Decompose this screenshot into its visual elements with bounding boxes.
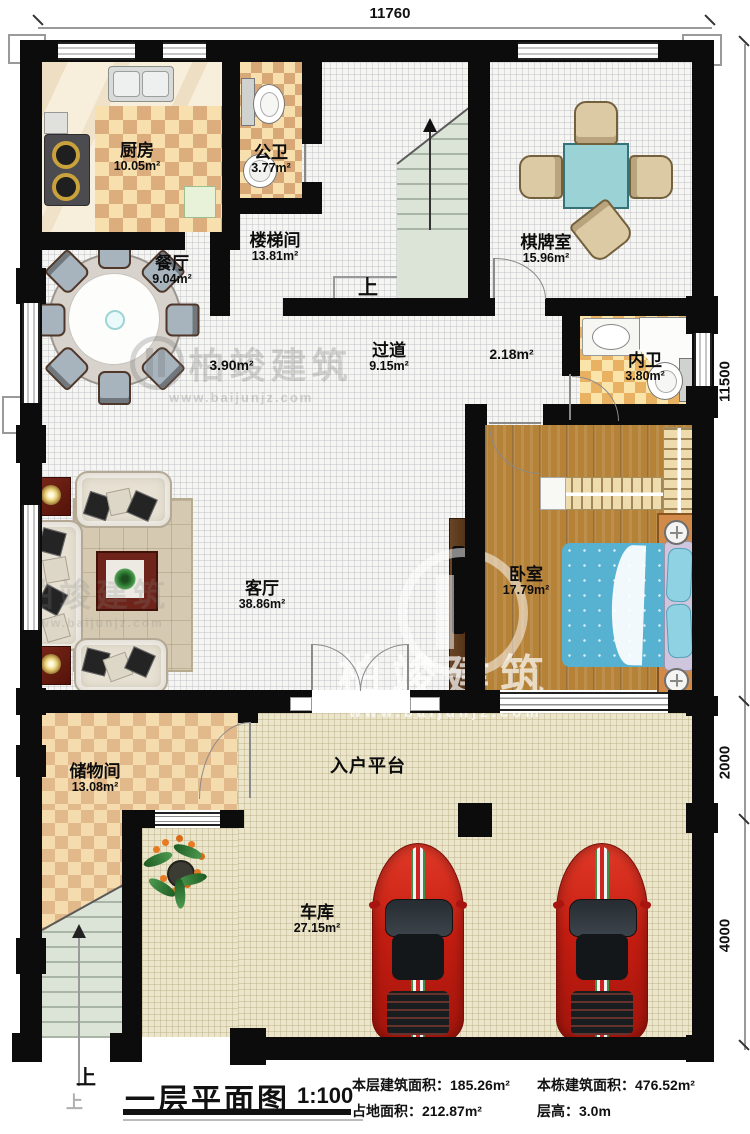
window [694,333,712,386]
dining-chair [98,371,131,405]
room-area: 9.04m² [127,273,217,287]
room-label-public-bath: 公卫 3.77m² [226,144,316,176]
door-sill [410,697,440,711]
room-area: 9.15m² [339,360,439,374]
room-name: 储物间 [45,763,145,781]
stairs-up-label: 上 [358,271,378,300]
window [163,42,206,60]
wardrobe [663,427,694,519]
room-name: 楼梯间 [225,232,325,250]
wall-bedroom-west [465,425,485,690]
car [556,843,648,1045]
room-label-dining: 餐厅 9.04m² [127,255,217,287]
drawing-scale: 1:100 [297,1083,353,1109]
room-label-living: 客厅 38.86m² [212,580,312,612]
wall-appliance [44,112,68,134]
stat-footprint-area: 占地面积：212.87m² [352,1101,482,1121]
dimension-right-middle: 2000 [717,728,734,798]
stove-burner-icon [52,173,80,201]
sofa-cushion [42,556,70,584]
window [500,692,668,711]
car-windshield [569,899,637,937]
room-area: 2.18m² [474,347,549,362]
wall-innerbath-north [545,298,692,316]
plant-leaf-icon [172,843,204,861]
door-sill [290,697,312,711]
stairs-direction-line [429,132,431,230]
stat-label: 层高： [537,1103,579,1119]
kitchen-sink-basin [113,71,140,97]
room-label-kitchen: 厨房 10.05m² [92,142,182,174]
pillow [666,547,694,602]
plant-berries-icon [153,846,160,853]
dimension-right-lower: 4000 [717,901,734,971]
room-area: 13.08m² [45,781,145,795]
window [22,303,40,403]
car-engine-vent [571,991,633,1035]
stat-label: 本层建筑面积： [352,1077,450,1093]
exterior-stairs-up-label-faint: 上 [66,1088,83,1113]
pillar [110,1033,142,1062]
room-area: 3.77m² [226,162,316,176]
stat-value: 185.26m² [450,1077,510,1093]
wall-south-right [668,690,692,713]
table-lamp-icon [41,485,61,505]
kitchen-sink-basin [142,71,169,97]
room-name: 客厅 [212,580,312,598]
wall-storage-south [220,810,244,828]
room-area: 15.96m² [496,252,596,266]
room-label-entry-platform: 入户平台 [298,757,438,776]
room-area: 3.90m² [194,358,269,373]
car-engine-vent [387,991,449,1035]
stat-label: 本栋建筑面积： [537,1077,635,1093]
card-chair [574,101,618,145]
room-name: 过道 [339,342,439,360]
stat-floor-area: 本层建筑面积：185.26m² [352,1075,510,1095]
pillar [686,1035,714,1062]
nightstand-lamp-icon [664,520,689,545]
room-name: 厨房 [92,142,182,160]
pillar [230,1028,266,1065]
dimension-top: 11760 [340,5,440,22]
hallway-subarea-right: 2.18m² [474,347,549,362]
room-name: 车库 [267,904,367,922]
wall-kitchen-south [42,232,185,250]
window [22,505,40,630]
window [155,812,220,826]
wall-innerbath-west [562,316,580,376]
room-label-inner-bath: 内卫 3.80m² [600,352,690,384]
room-name: 内卫 [600,352,690,370]
wall-stair-chess [468,62,490,316]
window [518,42,658,60]
wall-public-bath-south [238,198,322,214]
table-plant-icon [114,568,136,590]
toilet-bowl-inner [260,92,279,117]
pillar [686,803,718,833]
wall-south-living [20,690,312,713]
car-windshield [385,899,453,937]
pillar [16,425,46,463]
card-table [563,143,629,209]
table-lamp-icon [41,654,61,674]
stat-value: 212.87m² [422,1103,482,1119]
floor-plan: 柏竣建筑 www.baijunjz.com 柏竣建筑 www.baijunjz.… [0,0,750,1134]
dimension-line-top [38,27,712,29]
kitchen-door-mat [184,186,216,218]
pillar [12,1033,42,1062]
wall-public-bath-east [302,62,322,144]
dimension-tick [704,14,715,25]
car-roof [576,934,628,980]
room-label-chess: 棋牌室 15.96m² [496,234,596,266]
pillar [16,745,46,777]
dining-chair [166,304,200,337]
room-area: 13.81m² [225,250,325,264]
room-label-stairwell: 楼梯间 13.81m² [225,232,325,264]
dimension-right-upper: 11500 [717,347,734,417]
car [372,843,464,1045]
room-area: 10.05m² [92,160,182,174]
interior-stairs-landing [397,238,468,298]
room-name: 棋牌室 [496,234,596,252]
room-name: 餐厅 [127,255,217,273]
stat-label: 占地面积： [352,1103,422,1119]
stove-burner-icon [52,141,80,169]
stairs-arrow-icon [423,118,437,132]
pillar [16,268,46,304]
column [458,803,492,837]
potted-plant [143,826,213,910]
room-area: 17.79m² [476,584,576,598]
stat-value: 476.52m² [635,1077,695,1093]
wardrobe-desk [540,477,566,510]
exterior-stairs-arrow-icon [72,924,86,938]
stat-value: 3.0m [579,1103,611,1119]
exterior-stairs-up-label: 上 [76,1061,96,1090]
wall-right [692,40,714,1060]
room-name: 入户平台 [298,757,438,776]
door-leaf [569,374,571,420]
pillar [16,938,46,974]
tv-icon [452,546,465,634]
wall-storage-south [122,810,155,828]
door-leaf [489,422,541,424]
pillow [666,603,694,658]
wall-hall-north [283,298,495,316]
title-underline-thin [123,1119,363,1121]
room-area: 38.86m² [212,598,312,612]
hallway-subarea-left: 3.90m² [194,358,269,373]
room-label-garage: 车库 27.15m² [267,904,367,936]
room-label-bedroom: 卧室 17.79m² [476,566,576,598]
card-chair [519,155,563,199]
dimension-tick [32,14,43,25]
car-roof [392,934,444,980]
wall-bottom [237,1037,712,1060]
wall-public-bath-east [302,182,322,198]
window [58,42,135,60]
wall-storage-leg-east [122,810,142,1037]
vanity-basin [592,324,630,350]
wall-bedroom-north [465,404,487,425]
dining-table-center [105,310,125,330]
stat-building-area: 本栋建筑面积：476.52m² [537,1075,695,1095]
title-underline-thick [123,1109,351,1115]
stat-floor-height: 层高：3.0m [537,1101,611,1121]
room-area: 3.80m² [600,370,690,384]
room-area: 27.15m² [267,922,367,936]
room-label-hallway: 过道 9.15m² [339,342,439,374]
card-chair [629,155,673,199]
dimension-line-right [744,44,746,1050]
room-name: 卧室 [476,566,576,584]
room-label-storage: 储物间 13.08m² [45,763,145,795]
room-name: 公卫 [226,144,316,162]
